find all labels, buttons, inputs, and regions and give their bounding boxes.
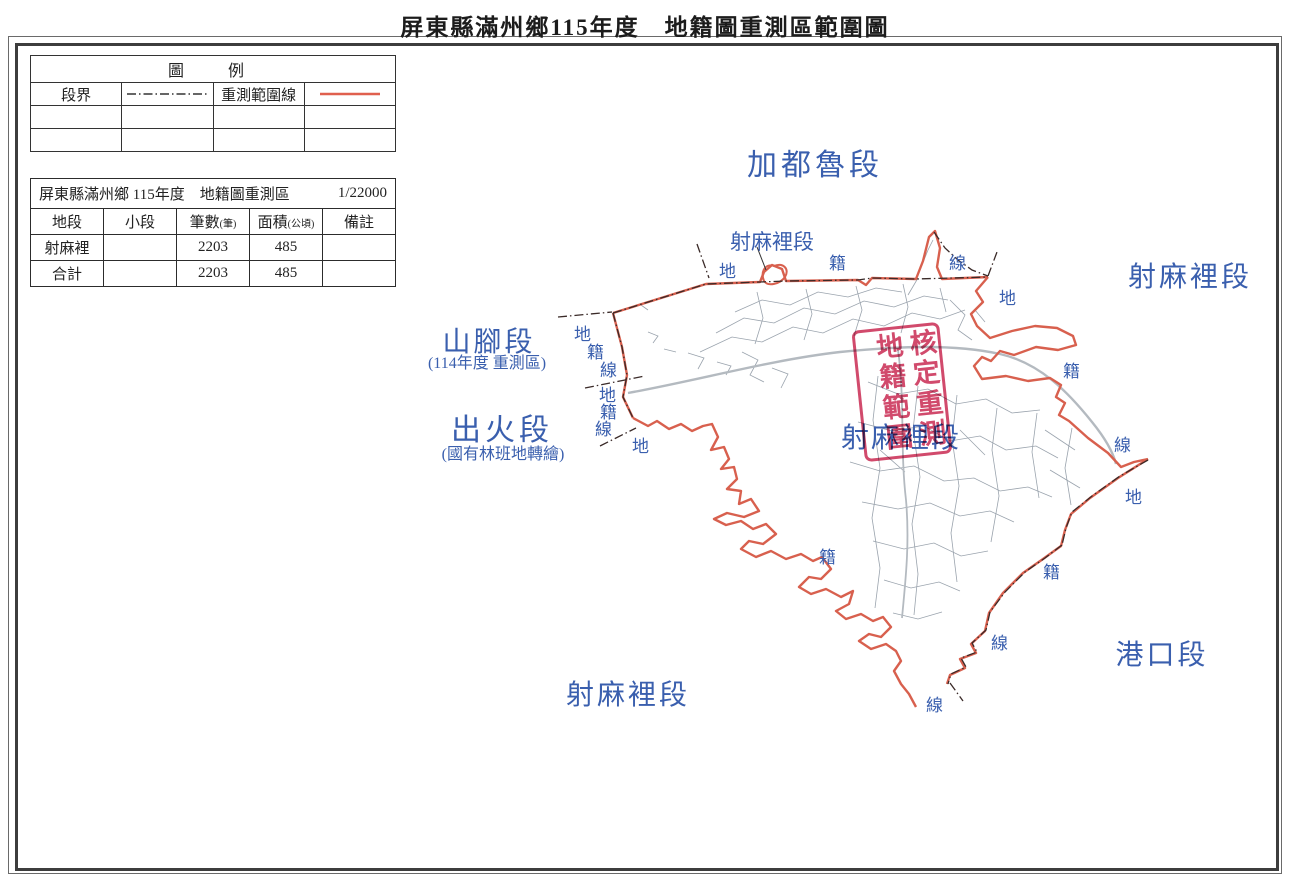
- cell-area: 485: [250, 235, 323, 261]
- boundary-char: 籍: [1063, 357, 1080, 382]
- boundary-char: 籍: [819, 543, 836, 568]
- boundary-char: 籍: [1043, 558, 1060, 583]
- boundary-char: 地: [999, 284, 1016, 309]
- boundary-char: 線: [595, 415, 612, 440]
- col-header-area: 面積(公頃): [250, 209, 323, 235]
- cell-note: [323, 261, 396, 287]
- stamp-text-right: 核定地籍: [856, 327, 942, 396]
- table-row: 射麻裡 2203 485: [31, 235, 396, 261]
- cell-parcels: 2203: [177, 261, 250, 287]
- scanned-map-page: { "page": { "title": "屏東縣滿州鄉115年度 地籍圖重測區…: [0, 0, 1290, 882]
- dash-dot-line-icon: [125, 91, 209, 97]
- legend-title: 圖 例: [31, 56, 396, 83]
- district-label-chuhuo-note: (國有林班地轉繪): [442, 440, 565, 464]
- district-label-shanjiao-note: (114年度 重測區): [428, 349, 546, 373]
- map-scale: 1/22000: [338, 185, 387, 202]
- boundary-char: 線: [926, 691, 943, 716]
- legend-redline-sample: [304, 83, 395, 106]
- cell-subsection: [104, 261, 177, 287]
- page-inner-border: [15, 43, 1279, 871]
- boundary-char: 地: [719, 257, 736, 282]
- table-row: 合計 2203 485: [31, 261, 396, 287]
- district-label-shemali-right: 射麻裡段: [1128, 255, 1252, 295]
- boundary-char: 線: [991, 629, 1008, 654]
- approval-stamp: 核定地籍 重測範圍: [851, 322, 952, 462]
- boundary-char: 線: [1114, 431, 1131, 456]
- district-label-shemali-top: 射麻裡段: [730, 226, 814, 256]
- legend-item-label: 重測範圍線: [213, 83, 304, 106]
- cell-parcels: 2203: [177, 235, 250, 261]
- legend-item-label: 段界: [31, 83, 122, 106]
- legend-table: 圖 例 段界 重測範圍線: [30, 55, 396, 152]
- district-label-jiadulu: 加都魯段: [747, 140, 883, 184]
- col-header-section: 地段: [31, 209, 104, 235]
- col-header-parcels: 筆數(筆): [177, 209, 250, 235]
- cell-subsection: [104, 235, 177, 261]
- resurvey-stats-table: 屏東縣滿州鄉 115年度 地籍圖重測區 1/22000 地段 小段 筆數(筆) …: [30, 178, 396, 287]
- stats-table-title: 屏東縣滿州鄉 115年度 地籍圖重測區: [39, 183, 290, 204]
- boundary-char: 地: [632, 432, 649, 457]
- col-header-note: 備註: [323, 209, 396, 235]
- col-header-subsection: 小段: [104, 209, 177, 235]
- stamp-text-left: 重測範圍: [862, 388, 948, 457]
- legend-dashdot-sample: [122, 83, 213, 106]
- cell-section: 合計: [31, 261, 104, 287]
- boundary-char: 地: [1125, 483, 1142, 508]
- stats-header-row: 地段 小段 筆數(筆) 面積(公頃) 備註: [31, 209, 396, 235]
- cell-area: 485: [250, 261, 323, 287]
- red-line-icon: [318, 91, 382, 97]
- boundary-char: 線: [600, 356, 617, 381]
- boundary-char: 籍: [829, 249, 846, 274]
- district-label-shemali-bottom: 射麻裡段: [566, 673, 690, 713]
- cell-section: 射麻裡: [31, 235, 104, 261]
- boundary-char: 線: [949, 249, 966, 274]
- cell-note: [323, 235, 396, 261]
- page-title: 屏東縣滿州鄉115年度 地籍圖重測區範圍圖: [0, 8, 1290, 42]
- district-label-gangkou: 港口段: [1115, 633, 1208, 673]
